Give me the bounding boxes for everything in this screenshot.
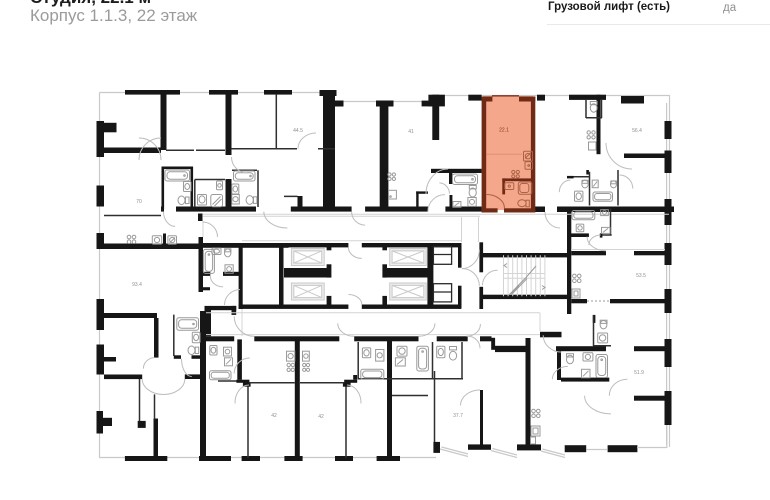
svg-text:42: 42	[271, 413, 277, 419]
svg-text:22.1: 22.1	[499, 128, 509, 134]
svg-text:70: 70	[136, 199, 142, 205]
svg-text:44.5: 44.5	[293, 128, 303, 134]
svg-text:37.7: 37.7	[453, 413, 463, 419]
svg-text:51.9: 51.9	[634, 370, 644, 376]
svg-text:56.4: 56.4	[632, 128, 642, 134]
svg-text:53.5: 53.5	[636, 273, 646, 279]
svg-text:41: 41	[408, 129, 414, 135]
svg-text:42: 42	[318, 414, 324, 420]
svg-text:93.4: 93.4	[132, 282, 142, 288]
